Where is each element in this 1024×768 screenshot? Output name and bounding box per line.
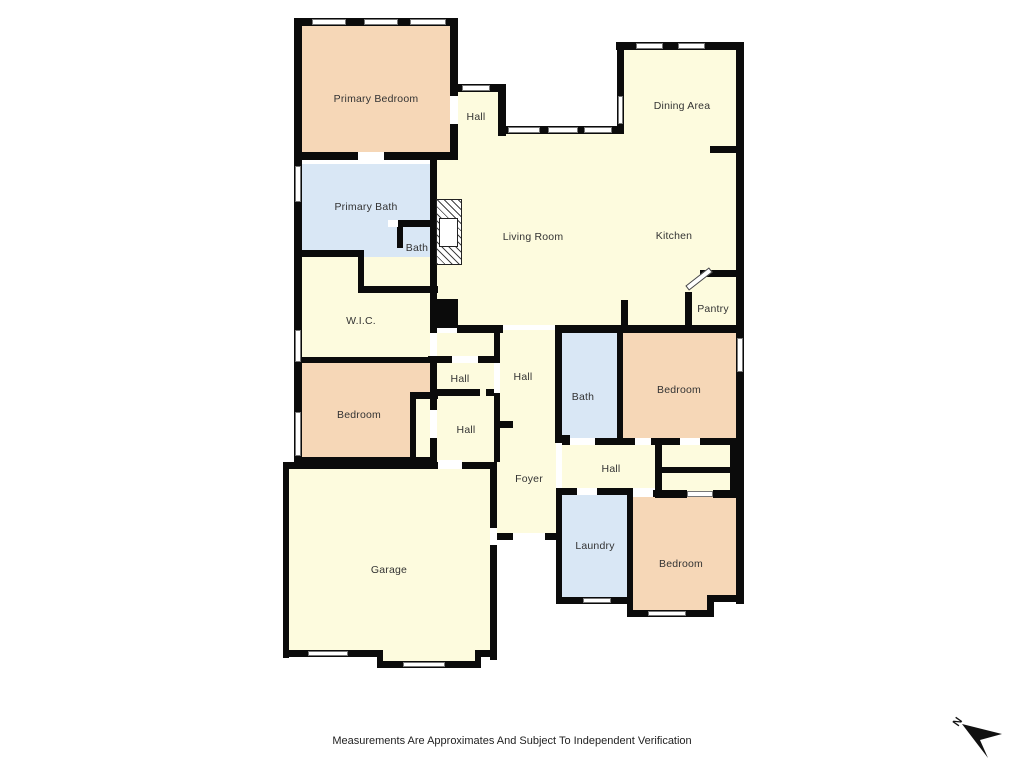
room-primary-bedroom bbox=[302, 26, 450, 152]
disclaimer-text: Measurements Are Approximates And Subjec… bbox=[0, 735, 1024, 747]
room-label-bedroom-left: Bedroom bbox=[299, 407, 419, 423]
wall-segment bbox=[736, 42, 744, 604]
room-closets-right bbox=[662, 473, 730, 491]
wall-segment bbox=[478, 356, 497, 363]
room-closets-right bbox=[662, 445, 730, 467]
wall-segment bbox=[398, 220, 432, 227]
room-label-hall-3: Hall bbox=[406, 422, 526, 438]
door-opening bbox=[438, 460, 462, 469]
window bbox=[410, 19, 446, 25]
window bbox=[295, 330, 301, 362]
room-label-dining-area: Dining Area bbox=[622, 98, 742, 114]
room-label-bath-small: Bath bbox=[357, 240, 477, 256]
door-opening bbox=[388, 220, 398, 227]
door-opening bbox=[577, 488, 597, 495]
window bbox=[308, 651, 348, 656]
window bbox=[508, 127, 540, 133]
window bbox=[687, 491, 713, 497]
door-opening bbox=[358, 152, 384, 160]
wall-segment bbox=[623, 438, 635, 445]
wall-segment bbox=[294, 357, 434, 363]
wall-segment bbox=[296, 250, 364, 257]
wall-segment bbox=[557, 325, 744, 333]
room-label-kitchen: Kitchen bbox=[614, 228, 734, 244]
window bbox=[737, 338, 743, 372]
wall-segment bbox=[662, 438, 680, 445]
wall-segment bbox=[490, 545, 497, 660]
window bbox=[583, 598, 611, 603]
room-label-wic: W.I.C. bbox=[301, 313, 421, 329]
room-bath-center bbox=[562, 333, 617, 438]
wall-segment bbox=[595, 438, 623, 445]
window bbox=[312, 19, 346, 25]
door-opening bbox=[430, 333, 437, 356]
wall-segment bbox=[428, 356, 452, 363]
wall-segment bbox=[713, 490, 736, 497]
wall-segment bbox=[621, 300, 628, 328]
window bbox=[462, 85, 490, 91]
floor-plan-canvas: Primary BedroomHallDining AreaLiving Roo… bbox=[0, 0, 1024, 768]
room-garage bbox=[288, 469, 490, 650]
wall-segment bbox=[653, 490, 687, 497]
room-label-garage: Garage bbox=[329, 562, 449, 578]
window bbox=[295, 166, 301, 202]
wall-segment bbox=[707, 595, 714, 617]
room-dining-area bbox=[624, 50, 736, 134]
wall-segment bbox=[294, 18, 302, 468]
window bbox=[584, 127, 612, 133]
window bbox=[403, 662, 445, 667]
room-label-laundry: Laundry bbox=[535, 538, 655, 554]
room-label-pantry: Pantry bbox=[653, 301, 773, 317]
wall-segment bbox=[294, 152, 358, 160]
room-label-hall-4: Hall bbox=[551, 461, 671, 477]
door-opening bbox=[635, 438, 651, 445]
window bbox=[678, 43, 705, 49]
wall-segment bbox=[283, 462, 289, 658]
door-opening bbox=[452, 356, 478, 363]
room-wic bbox=[302, 257, 430, 357]
door-opening bbox=[490, 528, 497, 545]
room-bedroom-bottom bbox=[633, 595, 714, 610]
wall-segment bbox=[358, 286, 438, 293]
wall-segment bbox=[662, 467, 737, 473]
room-label-primary-bath: Primary Bath bbox=[306, 199, 426, 215]
door-opening bbox=[680, 438, 700, 445]
wall-segment bbox=[562, 438, 570, 445]
window bbox=[636, 43, 663, 49]
window bbox=[648, 611, 686, 616]
structural-column bbox=[432, 299, 458, 328]
window bbox=[548, 127, 578, 133]
wall-segment bbox=[283, 462, 438, 469]
wall-segment bbox=[384, 152, 458, 160]
room-label-hall-2-foyer: Hall bbox=[463, 369, 583, 385]
door-opening bbox=[570, 438, 595, 445]
wall-segment bbox=[497, 533, 513, 540]
wall-segment bbox=[433, 389, 480, 396]
window bbox=[364, 19, 398, 25]
room-label-living-room: Living Room bbox=[473, 229, 593, 245]
wall-segment bbox=[730, 438, 737, 498]
wall-segment bbox=[710, 146, 744, 153]
room-label-bedroom-right: Bedroom bbox=[619, 382, 739, 398]
room-label-bedroom-bottom: Bedroom bbox=[621, 556, 741, 572]
room-label-hall-top: Hall bbox=[416, 109, 536, 125]
door-opening bbox=[633, 488, 653, 497]
wall-segment bbox=[475, 650, 497, 657]
room-label-primary-bedroom: Primary Bedroom bbox=[316, 91, 436, 107]
floorplan-page: Primary BedroomHallDining AreaLiving Roo… bbox=[0, 0, 1024, 768]
north-arrow: N bbox=[950, 712, 1010, 762]
room-living-room bbox=[450, 134, 622, 160]
